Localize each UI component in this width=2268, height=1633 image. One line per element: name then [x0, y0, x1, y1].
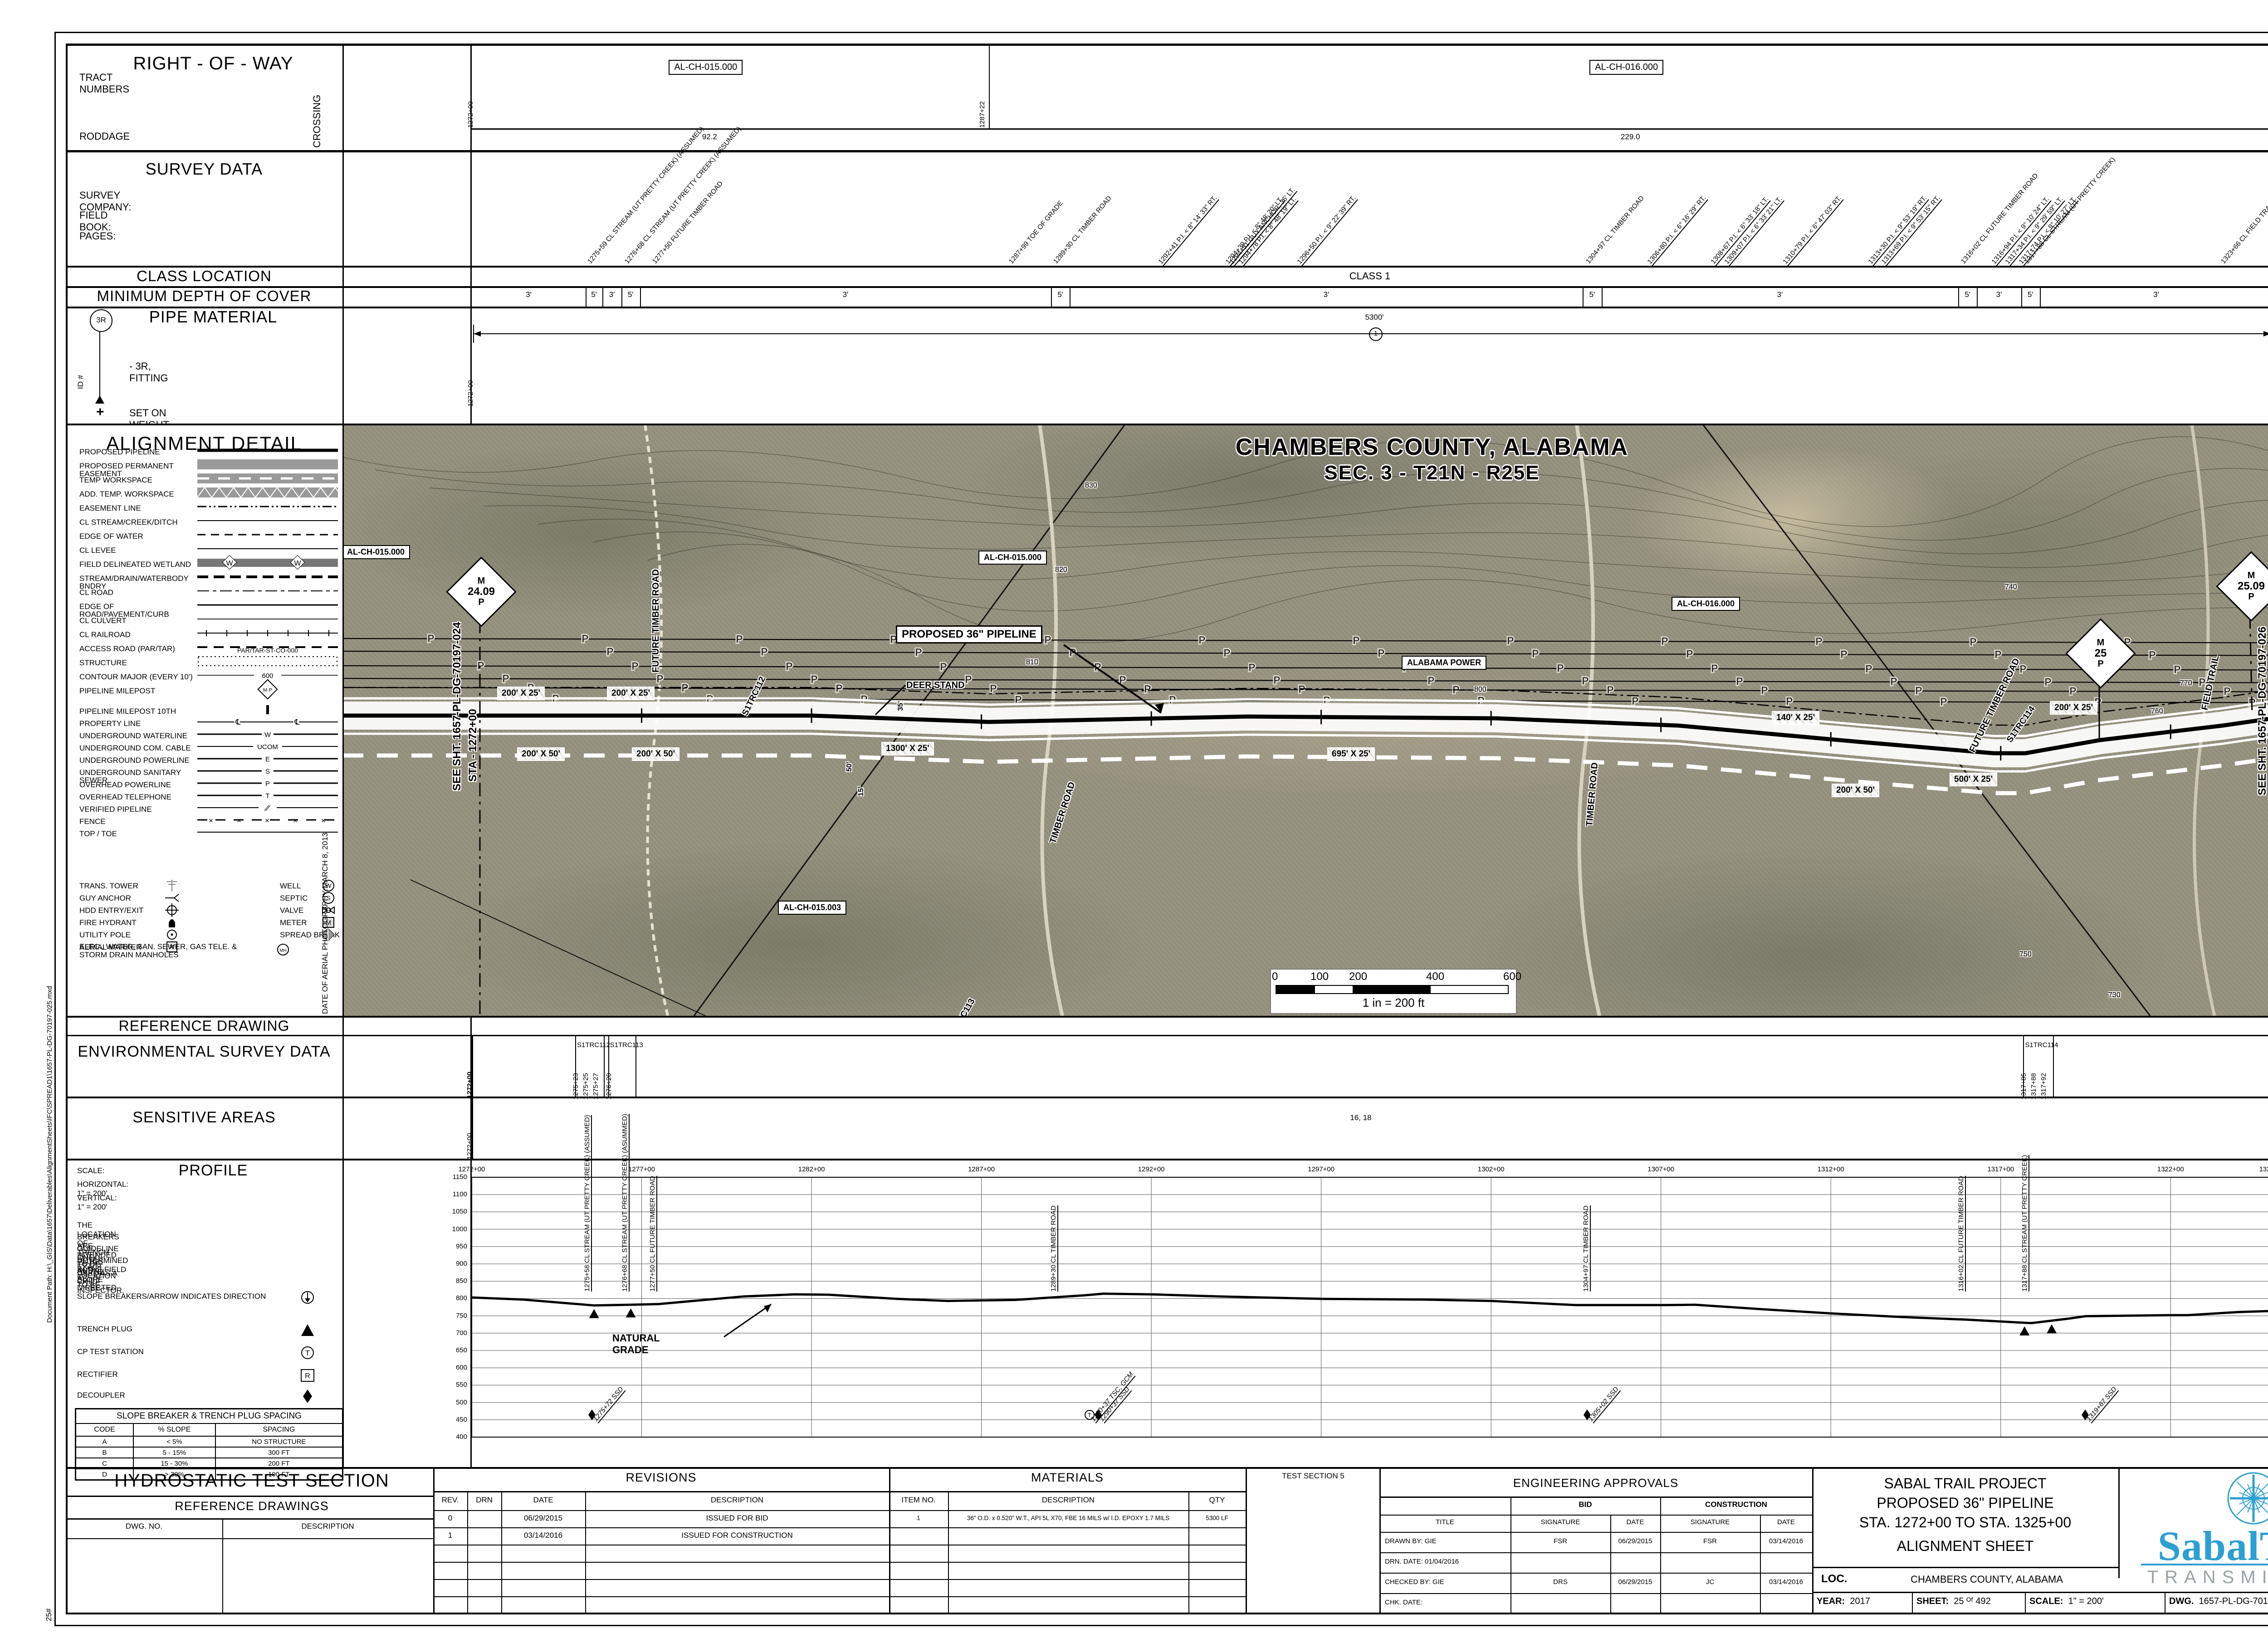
title-strip-cell: DWG. 1657-PL-DG-70197-025 [2169, 1596, 2268, 1607]
approvals-cell: FSR [1510, 1537, 1610, 1545]
approvals-col-header: DATE [1760, 1518, 1812, 1526]
ref-drawings-title: REFERENCE DRAWINGS [73, 1499, 431, 1513]
h-rule [66, 1613, 2268, 1614]
h-rule [66, 1016, 2268, 1018]
bt-h [66, 1518, 433, 1520]
profile-crossing-label: 1289+30 CL TIMBER ROAD [1050, 1205, 1058, 1292]
roddage-rule [472, 128, 2268, 130]
ssd-icon [1093, 1409, 1104, 1420]
env-group-edge [604, 1035, 605, 1097]
revisions-cell: 0 [433, 1514, 467, 1523]
brand-name: SabalTrail [2118, 1522, 2268, 1570]
h-rule [66, 266, 2268, 268]
rule [66, 44, 68, 1614]
elev-label-left: 1150 [444, 1173, 467, 1181]
profile-station-label: 1272+00 [449, 1165, 494, 1173]
bt-v2 [2165, 1592, 2165, 1613]
h-rule [66, 286, 2268, 288]
bt-h [66, 1538, 433, 1539]
profile-crossing-label: 1304+97 CL TIMBER ROAD [1582, 1205, 1591, 1292]
bt-v2 [1760, 1515, 1761, 1613]
approvals-cell: 03/14/2016 [1760, 1578, 1812, 1586]
h-rule [66, 150, 2268, 152]
elev-label-left: 500 [444, 1399, 467, 1406]
materials-cell: 5300 LF [1190, 1515, 1244, 1521]
bt-v2 [2025, 1592, 2026, 1613]
h-rule [66, 44, 2268, 46]
v-rule [470, 44, 472, 424]
elev-label-left: 750 [444, 1312, 467, 1320]
bt-h [1812, 1567, 2118, 1568]
project-line3: STA. 1272+00 TO STA. 1325+00 [1812, 1513, 2118, 1532]
env-group-edge [575, 1035, 576, 1097]
bt-v2 [1610, 1515, 1611, 1613]
materials-cell: 36" O.D. x 0.520" W.T., API 5L X70, FBE … [950, 1515, 1187, 1521]
revisions-header: DATE [501, 1496, 585, 1505]
h-rule [66, 1467, 2268, 1469]
revisions-title: REVISIONS [433, 1471, 889, 1485]
profile-crossing-label: 1276+68 CL STREAM (UT PRETTY CREEK) (ASU… [621, 1114, 630, 1292]
approvals-title: ENGINEERING APPROVALS [1379, 1476, 1812, 1490]
bt-v2 [1660, 1515, 1661, 1613]
bt-h [1379, 1532, 1812, 1533]
profile-station-label: 1302+00 [1468, 1165, 1514, 1173]
tract-boundary [989, 44, 990, 128]
rule [54, 1625, 2268, 1626]
elev-label-left: 650 [444, 1346, 467, 1354]
bt-h [1379, 1497, 1812, 1498]
project-line2: PROPOSED 36" PIPELINE [1812, 1493, 2118, 1513]
elev-label-left: 950 [444, 1243, 467, 1250]
bt-v2 [1510, 1515, 1511, 1613]
bt-h [889, 1596, 1246, 1597]
elev-label-left: 600 [444, 1364, 467, 1371]
approvals-cell: 06/29/2015 [1610, 1537, 1660, 1545]
bt-h [1379, 1573, 1812, 1574]
elev-label-left: 900 [444, 1260, 467, 1267]
revisions-cell: 1 [433, 1531, 467, 1540]
depth-tick [621, 286, 622, 307]
revisions-cell: 03/14/2016 [501, 1531, 585, 1540]
profile-station-label: 1312+00 [1808, 1165, 1853, 1173]
title-strip-cell: SHEET: 25 ᴼᶠ 492 [1916, 1596, 2022, 1607]
ref-desc-header: DESCRIPTION [222, 1522, 433, 1531]
alignment-sheet: { "colors":{"brand_blue":"#2d9fd0","bran… [0, 0, 2268, 1633]
bt-v2 [1912, 1592, 1913, 1613]
revisions-cell: ISSUED FOR CONSTRUCTION [585, 1531, 889, 1540]
approvals-cell: 06/29/2015 [1610, 1578, 1660, 1586]
env-group-edge [2053, 1035, 2054, 1097]
ssd-icon [1582, 1409, 1593, 1420]
approvals-col-header: DATE [1610, 1518, 1660, 1526]
env-group-edge [635, 1035, 636, 1097]
approvals-col-header: SIGNATURE [1510, 1518, 1610, 1526]
approvals-cell: 03/14/2016 [1760, 1537, 1812, 1545]
ssd-icon [587, 1409, 597, 1420]
revisions-cell: ISSUED FOR BID [585, 1514, 889, 1523]
bt-v [1379, 1467, 1381, 1613]
bt-h [66, 1496, 433, 1497]
approvals-cell: DRS [1510, 1578, 1610, 1586]
depth-tick [1070, 286, 1070, 307]
depth-tick [602, 286, 603, 307]
svg-text:T: T [1088, 1412, 1091, 1419]
h-rule [66, 1035, 2268, 1036]
title-strip-cell: YEAR: 2017 [1817, 1596, 1909, 1607]
bt-v [433, 1467, 435, 1613]
construction-header: CONSTRUCTION [1660, 1500, 1812, 1509]
h-rule [66, 1159, 2268, 1160]
profile-station-label: 1325+00 [2250, 1165, 2268, 1173]
depth-tick [640, 286, 641, 307]
env-group-edge [2023, 1035, 2024, 1097]
profile-station-label: 1297+00 [1299, 1165, 1344, 1173]
bt-v2 [948, 1491, 949, 1613]
ref-dwg-no-header: DWG. NO. [66, 1522, 222, 1531]
bt-h [433, 1491, 1246, 1492]
h-rule [66, 424, 2268, 425]
elev-label-left: 550 [444, 1381, 467, 1389]
materials-header: DESCRIPTION [948, 1496, 1188, 1505]
profile-station-label: 1307+00 [1638, 1165, 1684, 1173]
project-title-block: SABAL TRAIL PROJECTPROPOSED 36" PIPELINE… [1812, 1474, 2118, 1556]
bt-h [889, 1579, 1246, 1580]
depth-tick [1958, 286, 1959, 307]
elev-label-left: 1100 [444, 1190, 467, 1198]
profile-crossing-label: 1317+88 CL STREAM (UT PRETTY CREEK) [2021, 1155, 2029, 1292]
elev-label-left: 400 [444, 1433, 467, 1441]
sabal-trail-logo: SabalTrailTRANSMISSIONSM [2118, 1468, 2268, 1591]
env-group-edge [608, 1035, 609, 1097]
profile-crossing-label: 1316+02 CL FUTURE TIMBER ROAD [1957, 1176, 1966, 1292]
bt-h [1379, 1593, 1812, 1594]
project-line4: ALIGNMENT SHEET [1812, 1536, 2118, 1556]
materials-header: ITEM NO. [889, 1496, 948, 1505]
project-name: SABAL TRAIL PROJECT [1812, 1474, 2118, 1493]
test-section-value: TEST SECTION 5 [1252, 1472, 1374, 1481]
profile-station-label: 1322+00 [2148, 1165, 2193, 1173]
bt-v2 [1188, 1491, 1189, 1613]
env-edge [472, 1035, 473, 1097]
title-strip-cell: SCALE: 1" = 200' [2029, 1596, 2162, 1607]
bid-header: BID [1510, 1500, 1660, 1509]
bt-h [1812, 1592, 2268, 1593]
bt-h [889, 1527, 1246, 1528]
approvals-row-label: DRAWN BY: GIE [1385, 1537, 1510, 1545]
bt-h [222, 1518, 223, 1613]
bt-v [889, 1467, 890, 1613]
hydrostatic-label: HYDROSTATIC TEST SECTION [73, 1471, 431, 1491]
drawing-sheet: Document Path: H:\_GIS\Data\1657\Deliver… [0, 0, 2268, 1633]
bt-h [1379, 1552, 1812, 1553]
revisions-header: DRN [467, 1496, 501, 1505]
depth-tick [1602, 286, 1603, 307]
bt-h [889, 1545, 1246, 1545]
bt-h [889, 1562, 1246, 1563]
depth-tick [2021, 286, 2022, 307]
elev-label-left: 700 [444, 1329, 467, 1337]
depth-tick [2040, 286, 2041, 307]
elev-label-left: 850 [444, 1277, 467, 1285]
bt-v [1246, 1467, 1247, 1613]
bt-v [2118, 1467, 2120, 1578]
natural-grade-label: NATURAL GRADE [612, 1332, 660, 1356]
bt-v2 [501, 1491, 502, 1613]
profile-crossing-label: 1275+58 CL STREAM (UT PRETTY CREEK) (ASS… [583, 1115, 592, 1292]
depth-tick [586, 286, 587, 307]
profile-grid-svg [0, 0, 2268, 1633]
profile-station-label: 1282+00 [789, 1165, 834, 1173]
approvals-cell: JC [1660, 1578, 1760, 1586]
profile-station-label: 1287+00 [959, 1165, 1004, 1173]
bt-h [1379, 1515, 1812, 1516]
depth-tick [1583, 286, 1584, 307]
bt-h [889, 1510, 1246, 1511]
profile-station-label: 1317+00 [1978, 1165, 2024, 1173]
compass-logo [2226, 1471, 2268, 1526]
materials-cell: 1 [891, 1515, 946, 1521]
rule [54, 32, 56, 1626]
profile-crossing-label: 1277+50 CL FUTURE TIMBER ROAD [649, 1176, 657, 1292]
elev-label-left: 450 [444, 1416, 467, 1423]
brand-sub: TRANSMISSIONSM [2125, 1567, 2268, 1588]
revisions-header: REV. [433, 1496, 467, 1505]
elev-label-left: 1000 [444, 1225, 467, 1233]
approvals-row-label: DRN. DATE: 01/04/2016 [1385, 1558, 1510, 1565]
bt-v2 [467, 1491, 468, 1613]
materials-header: QTY [1188, 1496, 1246, 1505]
h-rule [66, 1097, 2268, 1098]
approvals-row-label: CHECKED BY: GIE [1385, 1578, 1510, 1586]
approvals-col-header: TITLE [1379, 1518, 1510, 1526]
materials-title: MATERIALS [889, 1471, 1246, 1485]
approvals-cell: FSR [1660, 1537, 1760, 1545]
ssd-icon [2080, 1409, 2091, 1420]
loc-value: CHAMBERS COUNTY, ALABAMA [1860, 1574, 2114, 1585]
depth-tick [1051, 286, 1052, 307]
approvals-col-header: SIGNATURE [1660, 1518, 1760, 1526]
bt-v2 [585, 1491, 586, 1613]
brand-rule [2141, 1564, 2268, 1565]
elev-label-left: 800 [444, 1294, 467, 1302]
v-rule [342, 44, 344, 1467]
bt-v [1812, 1467, 1813, 1613]
depth-tick [1977, 286, 1978, 307]
revisions-header: DESCRIPTION [585, 1496, 889, 1505]
id-axis [99, 331, 100, 399]
approvals-row-label: CHK. DATE: [1385, 1599, 1510, 1606]
profile-station-label: 1292+00 [1129, 1165, 1174, 1173]
revisions-cell: 06/29/2015 [501, 1514, 585, 1523]
sa-edge [472, 1097, 473, 1159]
h-rule [66, 307, 2268, 308]
elev-label-left: 1050 [444, 1208, 467, 1215]
loc-label: LOC. [1821, 1573, 1847, 1585]
rule [54, 32, 2268, 33]
